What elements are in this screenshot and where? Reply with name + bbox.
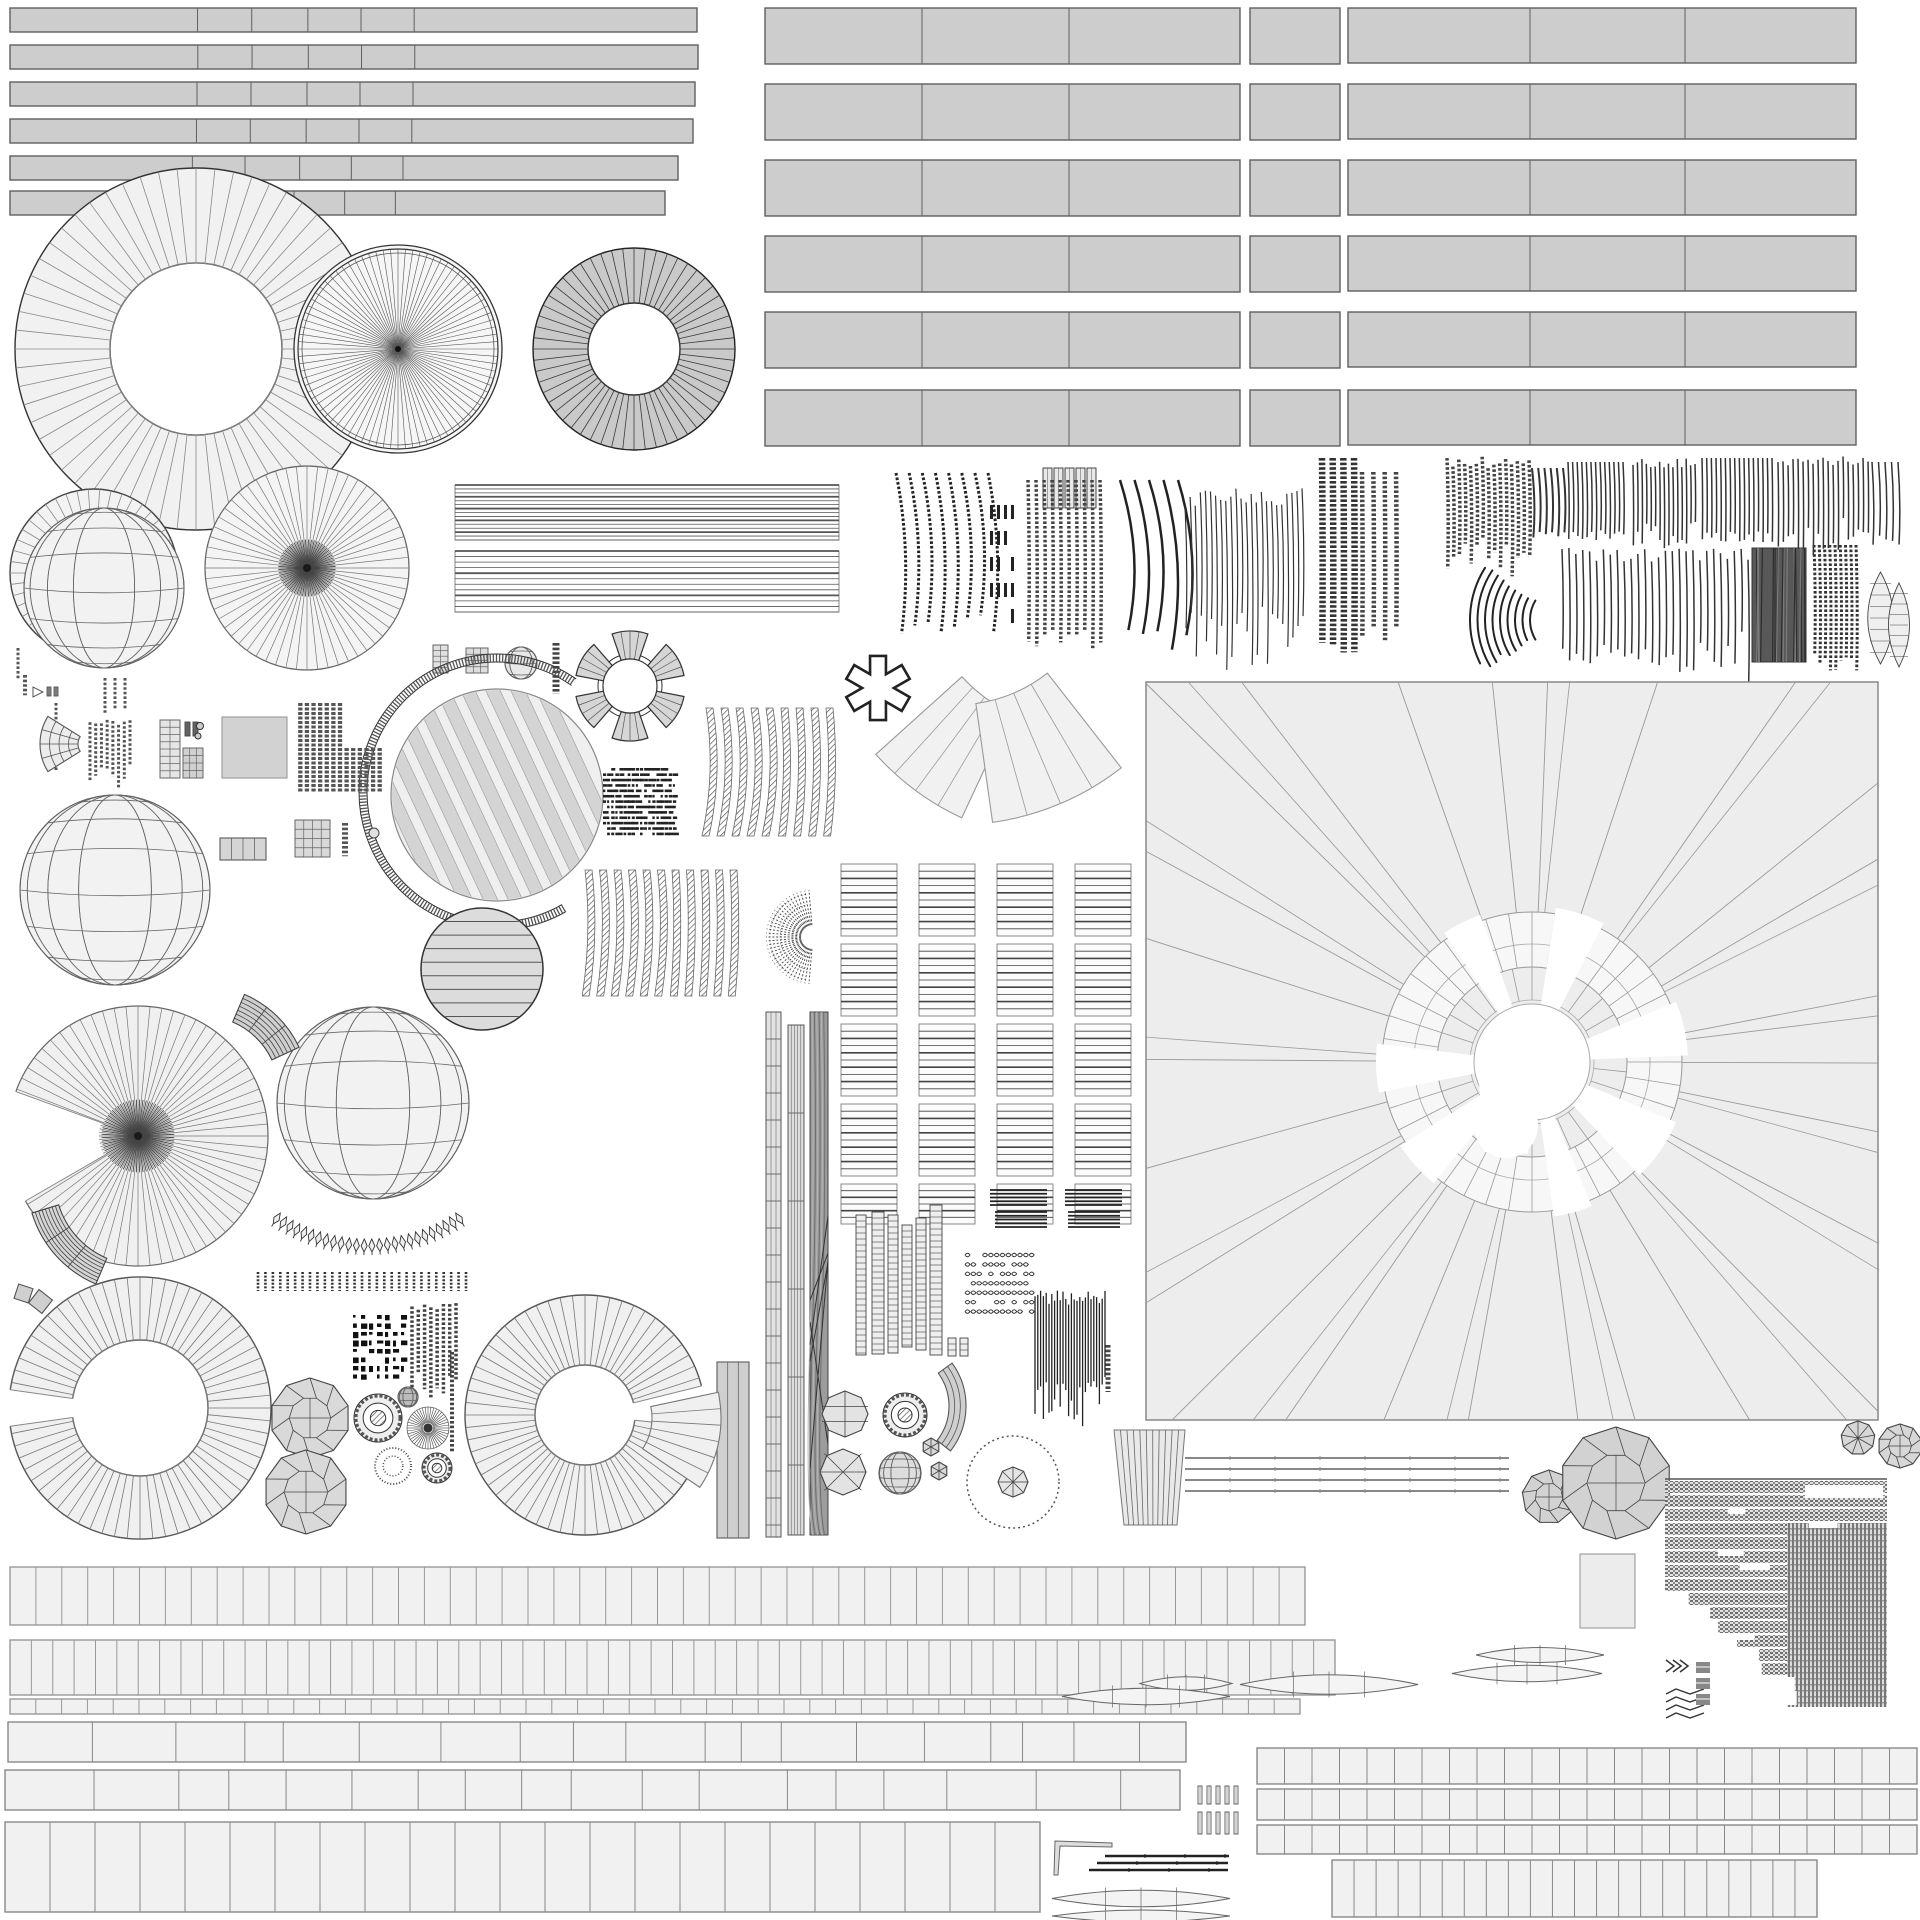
gear-flower bbox=[576, 631, 684, 741]
tall-bar-ladder bbox=[766, 1012, 781, 1537]
four-col-rect bbox=[220, 838, 266, 860]
bottom-row-b bbox=[10, 1640, 1335, 1695]
leaf-strip-7 bbox=[1052, 1908, 1230, 1920]
grid-sphere-2 bbox=[20, 795, 210, 985]
small-gear-2 bbox=[1879, 1424, 1920, 1468]
mid-bar-5 bbox=[765, 312, 1240, 368]
arc-parentheses bbox=[1470, 568, 1535, 666]
strand-group-g bbox=[1872, 462, 1900, 545]
tiny-circle-1 bbox=[197, 723, 204, 730]
topleft-bar-3 bbox=[10, 82, 695, 106]
octa-ball-1 bbox=[822, 1391, 868, 1437]
strand-group-d bbox=[1633, 459, 1696, 549]
right-bar-5 bbox=[1348, 312, 1856, 367]
tick-strip-d bbox=[105, 678, 125, 713]
banana-band bbox=[937, 1363, 966, 1451]
bottomright-row-2 bbox=[1257, 1789, 1917, 1820]
dense-dark-strands bbox=[1752, 548, 1806, 662]
right-bar-4 bbox=[1348, 236, 1856, 291]
leaf-strip-6 bbox=[1052, 1888, 1230, 1910]
mesh-ball bbox=[879, 1452, 921, 1494]
mid-bar-stub-1 bbox=[1250, 8, 1340, 64]
right-bar-3 bbox=[1348, 160, 1856, 215]
bottom-row-e bbox=[5, 1822, 1040, 1912]
topleft-bar-1 bbox=[10, 8, 697, 32]
mid-bar-1 bbox=[765, 8, 1240, 64]
dense-vline-block bbox=[1035, 1291, 1105, 1427]
lash-cluster-curved-1 bbox=[896, 473, 998, 633]
lash-cluster-thin bbox=[1185, 488, 1304, 670]
curved-grid-patch bbox=[295, 820, 330, 857]
segmented-thin-lines bbox=[1185, 1456, 1509, 1493]
topleft-bar-2 bbox=[10, 45, 698, 69]
right-bar-2 bbox=[1348, 84, 1856, 139]
mid-bar-3 bbox=[765, 160, 1240, 216]
leaf-strip-5 bbox=[1452, 1663, 1602, 1685]
striped-ball bbox=[421, 908, 543, 1030]
small-plate-row bbox=[1043, 468, 1096, 508]
half-fan-dashed bbox=[766, 890, 812, 984]
small-gear-1 bbox=[1841, 1421, 1874, 1454]
strand-group-a bbox=[1447, 457, 1530, 577]
tick-strip-group bbox=[412, 1303, 456, 1399]
strand-group-i bbox=[1814, 545, 1857, 670]
ring-fan-dark bbox=[533, 248, 735, 450]
gear-hub bbox=[998, 1467, 1028, 1497]
mid-bar-2 bbox=[765, 84, 1240, 140]
plain-light-rect bbox=[1580, 1554, 1635, 1628]
tire-ring bbox=[883, 1393, 927, 1437]
striped-square-grid bbox=[841, 864, 1131, 1224]
topleft-bar-4 bbox=[10, 119, 693, 143]
tiny-bar-pair bbox=[47, 687, 58, 696]
uv-layout-canvas bbox=[0, 0, 1920, 1920]
mid-bar-stub-2 bbox=[1250, 84, 1340, 140]
strand-group-f bbox=[1778, 456, 1869, 555]
star-outline bbox=[846, 656, 909, 720]
deca-disc-1 bbox=[272, 1378, 348, 1458]
tick-bar-row bbox=[258, 1272, 466, 1291]
tall-bar-lined bbox=[788, 1025, 804, 1535]
hex-2 bbox=[931, 1462, 947, 1480]
vtick-pair-row-1 bbox=[1198, 1786, 1238, 1804]
dot-matrix-block bbox=[603, 768, 679, 835]
lash-cluster-curved-2 bbox=[1120, 480, 1193, 650]
ring-fan-notched-left bbox=[7, 1277, 271, 1539]
grid-sphere-3 bbox=[24, 508, 184, 668]
disc-fan bbox=[205, 466, 409, 670]
thick-strand-bar-1 bbox=[1322, 458, 1355, 652]
tall-bar-wood bbox=[808, 1012, 828, 1535]
leaf-strip-4 bbox=[1476, 1645, 1604, 1665]
tick-gear-disc bbox=[354, 1394, 402, 1442]
leaf-island-v2 bbox=[1889, 583, 1910, 667]
curved-band-top bbox=[233, 994, 299, 1059]
bottom-row-a bbox=[10, 1567, 1305, 1625]
bottomright-row-3 bbox=[1257, 1825, 1917, 1854]
bead-necklace bbox=[269, 1211, 467, 1255]
mid-bar-stub-6 bbox=[1250, 390, 1340, 446]
bottom-row-c bbox=[8, 1722, 1186, 1762]
strand-group-h bbox=[1562, 548, 1749, 683]
right-bar-6 bbox=[1348, 390, 1856, 445]
vtick-pair-row-2 bbox=[1198, 1812, 1238, 1834]
deca-disc-2 bbox=[266, 1450, 346, 1534]
dark-line-trio bbox=[1089, 1854, 1229, 1872]
bowtie-grid bbox=[183, 748, 203, 778]
strand-group-e bbox=[1702, 458, 1773, 542]
strand-group-c bbox=[1568, 462, 1624, 540]
uv-atlas-page bbox=[0, 0, 1920, 1920]
striped-block-2 bbox=[455, 551, 839, 612]
mid-bar-stub-5 bbox=[1250, 312, 1340, 368]
dot-square-matrix bbox=[353, 1315, 407, 1380]
hex-1 bbox=[923, 1438, 939, 1456]
light-column-rect bbox=[717, 1362, 749, 1538]
thick-strand-bar-2 bbox=[1362, 472, 1397, 642]
dot-ring bbox=[375, 1448, 411, 1484]
octa-ball-2 bbox=[820, 1449, 866, 1495]
tick-cluster bbox=[90, 720, 130, 788]
starburst-disc bbox=[407, 1407, 449, 1449]
mid-bar-stub-4 bbox=[1250, 236, 1340, 292]
bottomright-row-1 bbox=[1257, 1748, 1917, 1784]
squiggle-block bbox=[965, 1253, 1034, 1313]
mid-bar-stub-3 bbox=[1250, 160, 1340, 216]
faceted-disc-large bbox=[1563, 1427, 1670, 1539]
tiny-triangle bbox=[33, 687, 43, 697]
spoke-wheel bbox=[294, 245, 502, 453]
strand-group-b bbox=[1532, 468, 1565, 537]
grid-sphere-1 bbox=[277, 1007, 469, 1199]
ladder-strip-cluster bbox=[856, 1205, 968, 1356]
bottomright-block bbox=[1332, 1860, 1817, 1917]
hatched-strips-2 bbox=[582, 870, 739, 996]
left-point-fan bbox=[40, 716, 80, 771]
trapezoid-strip bbox=[1114, 1430, 1185, 1525]
skirt-wedge-right bbox=[976, 673, 1121, 822]
right-bar-1 bbox=[1348, 8, 1856, 63]
dash-grid bbox=[990, 505, 1014, 623]
mid-bar-6 bbox=[765, 390, 1240, 446]
wavy-grid-strip bbox=[160, 720, 180, 778]
dashed-ring-small bbox=[422, 1453, 452, 1483]
striped-block-1 bbox=[455, 485, 839, 540]
tiny-disc bbox=[369, 828, 379, 838]
hatch-ball bbox=[398, 1387, 418, 1407]
tiny-circle-2 bbox=[195, 733, 201, 739]
topleft-bar-5 bbox=[10, 156, 678, 180]
comb-block bbox=[300, 703, 379, 793]
bottom-row-d bbox=[5, 1770, 1180, 1810]
mid-bar-4 bbox=[765, 236, 1240, 292]
tilted-square-2 bbox=[29, 1290, 53, 1314]
hatched-strips-1 bbox=[702, 708, 836, 836]
plain-gray-square bbox=[222, 717, 287, 778]
